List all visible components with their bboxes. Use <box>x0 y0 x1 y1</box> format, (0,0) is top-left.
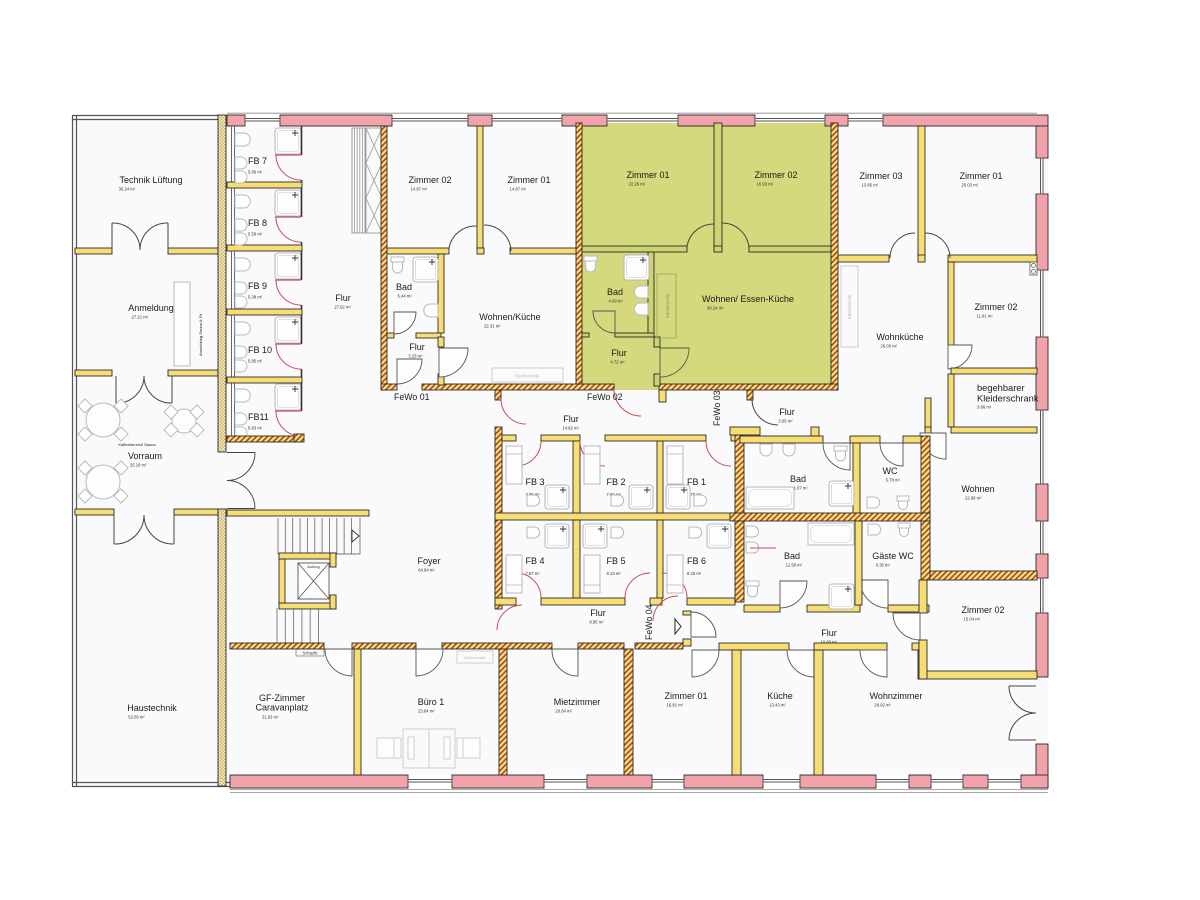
svg-text:Küchenzeile: Küchenzeile <box>847 294 852 319</box>
svg-text:Zimmer 03: Zimmer 03 <box>859 171 902 181</box>
svg-text:Wohnen: Wohnen <box>961 484 994 494</box>
svg-text:Küchenzeile: Küchenzeile <box>665 293 670 318</box>
svg-text:12.58 m²: 12.58 m² <box>786 563 803 568</box>
svg-text:Büro 1: Büro 1 <box>418 697 445 707</box>
svg-text:4.49 m²: 4.49 m² <box>609 299 624 304</box>
svg-text:Bad: Bad <box>607 287 623 297</box>
svg-text:Flur: Flur <box>611 348 627 358</box>
svg-text:27.62 m²: 27.62 m² <box>334 305 351 310</box>
svg-text:FB 3: FB 3 <box>526 477 545 487</box>
svg-text:16.81 m²: 16.81 m² <box>667 703 684 708</box>
svg-text:Flur: Flur <box>409 342 425 352</box>
svg-text:Zimmer 02: Zimmer 02 <box>408 175 451 185</box>
svg-text:Zimmer 01: Zimmer 01 <box>959 171 1002 181</box>
svg-text:FB 2: FB 2 <box>607 477 626 487</box>
svg-text:29.92 m²: 29.92 m² <box>874 703 891 708</box>
svg-text:Haustechnik: Haustechnik <box>127 703 177 713</box>
svg-text:Flur: Flur <box>821 628 837 638</box>
svg-text:3.95 m²: 3.95 m² <box>778 419 793 424</box>
svg-text:Küchenzeile: Küchenzeile <box>464 655 487 660</box>
svg-text:Vorraum: Vorraum <box>128 451 162 461</box>
svg-text:Foyer: Foyer <box>417 556 440 566</box>
svg-text:22.68 m²: 22.68 m² <box>965 496 982 501</box>
svg-text:Bad: Bad <box>784 551 800 561</box>
svg-text:Kaffeebereich Sauna: Kaffeebereich Sauna <box>118 442 156 447</box>
svg-text:Anmeldung Sauna & Fit: Anmeldung Sauna & Fit <box>198 313 203 356</box>
svg-text:Wohnen/ Essen-Küche: Wohnen/ Essen-Küche <box>702 294 794 304</box>
svg-text:11.81 m²: 11.81 m² <box>977 314 994 319</box>
svg-text:3.23 m²: 3.23 m² <box>408 354 423 359</box>
svg-text:Schacht: Schacht <box>302 651 318 656</box>
svg-text:FeWo 03: FeWo 03 <box>712 390 722 426</box>
svg-text:Kleiderschrank: Kleiderschrank <box>977 394 1039 404</box>
svg-text:FB 7: FB 7 <box>248 156 267 166</box>
svg-text:5.38 m²: 5.38 m² <box>248 295 263 300</box>
svg-text:FeWo 01: FeWo 01 <box>394 392 430 402</box>
svg-text:Anmeldung: Anmeldung <box>128 303 174 313</box>
svg-text:8.13 m²: 8.13 m² <box>607 571 622 576</box>
svg-text:Küchenzeile: Küchenzeile <box>515 374 540 379</box>
svg-text:FB 8: FB 8 <box>248 218 267 228</box>
svg-text:Zimmer 01: Zimmer 01 <box>664 691 707 701</box>
svg-text:Wohnen/Küche: Wohnen/Küche <box>479 312 540 322</box>
svg-text:FB 9: FB 9 <box>248 281 267 291</box>
svg-text:20.64 m²: 20.64 m² <box>555 709 572 714</box>
svg-text:Wohnküche: Wohnküche <box>876 332 923 342</box>
svg-text:13.85 m²: 13.85 m² <box>862 183 879 188</box>
svg-text:5.44 m²: 5.44 m² <box>398 294 413 299</box>
svg-text:30.24 m²: 30.24 m² <box>707 306 724 311</box>
svg-text:16.93 m²: 16.93 m² <box>757 182 774 187</box>
svg-text:Wohnzimmer: Wohnzimmer <box>870 691 923 701</box>
svg-text:13.43 m²: 13.43 m² <box>769 703 786 708</box>
svg-text:52.09 m²: 52.09 m² <box>128 715 145 720</box>
svg-text:Flur: Flur <box>779 407 795 417</box>
svg-text:FB 5: FB 5 <box>607 556 626 566</box>
svg-text:Flur: Flur <box>563 414 579 424</box>
svg-text:8.33 m²: 8.33 m² <box>687 571 702 576</box>
svg-text:FB 4: FB 4 <box>526 556 545 566</box>
svg-text:WC: WC <box>883 466 898 476</box>
svg-text:14.92 m²: 14.92 m² <box>562 426 579 431</box>
svg-text:14.87 m²: 14.87 m² <box>510 187 527 192</box>
svg-text:23.64 m²: 23.64 m² <box>418 709 435 714</box>
svg-text:Zimmer 02: Zimmer 02 <box>961 605 1004 615</box>
svg-text:22.31 m²: 22.31 m² <box>484 324 501 329</box>
svg-text:30.24 m²: 30.24 m² <box>119 187 136 192</box>
svg-text:14.87 m²: 14.87 m² <box>411 187 428 192</box>
svg-text:Gäste WC: Gäste WC <box>872 551 914 561</box>
svg-text:FB 10: FB 10 <box>248 345 272 355</box>
svg-text:Zimmer 01: Zimmer 01 <box>507 175 550 185</box>
svg-text:Technik Lüftung: Technik Lüftung <box>119 175 182 185</box>
svg-text:GF-Zimmer: GF-Zimmer <box>259 693 305 703</box>
svg-text:Zimmer 02: Zimmer 02 <box>974 302 1017 312</box>
svg-text:5.59 m²: 5.59 m² <box>248 232 263 237</box>
svg-text:Küche: Küche <box>767 691 793 701</box>
svg-text:20.03 m²: 20.03 m² <box>962 183 979 188</box>
svg-text:27.21 m²: 27.21 m² <box>132 315 149 320</box>
svg-text:7.87 m²: 7.87 m² <box>526 571 541 576</box>
svg-text:8.85 m²: 8.85 m² <box>589 620 604 625</box>
svg-text:Zimmer 01: Zimmer 01 <box>626 170 669 180</box>
svg-text:FeWo 04: FeWo 04 <box>644 604 654 640</box>
svg-text:FB11: FB11 <box>248 412 269 422</box>
svg-text:Bad: Bad <box>790 474 806 484</box>
svg-text:Bad: Bad <box>396 282 412 292</box>
svg-text:FB 6: FB 6 <box>687 556 706 566</box>
svg-text:Flur: Flur <box>335 293 351 303</box>
svg-text:Zimmer 02: Zimmer 02 <box>754 170 797 180</box>
svg-text:FeWo 02: FeWo 02 <box>587 392 623 402</box>
svg-text:Mietzimmer: Mietzimmer <box>554 697 601 707</box>
svg-text:26.00 m²: 26.00 m² <box>881 344 898 349</box>
svg-text:Caravanplatz: Caravanplatz <box>255 703 309 713</box>
svg-text:25.19 m²: 25.19 m² <box>130 463 147 468</box>
svg-text:5.85 m²: 5.85 m² <box>248 359 263 364</box>
svg-text:6.35 m²: 6.35 m² <box>876 563 891 568</box>
svg-text:Aufzug: Aufzug <box>307 564 319 569</box>
svg-text:FB 1: FB 1 <box>687 477 706 487</box>
svg-text:64.84 m²: 64.84 m² <box>418 568 435 573</box>
svg-text:3.86 m²: 3.86 m² <box>977 405 992 410</box>
svg-text:21.63 m²: 21.63 m² <box>262 715 279 720</box>
svg-text:5.86 m²: 5.86 m² <box>248 170 263 175</box>
svg-text:5.78 m²: 5.78 m² <box>886 478 901 483</box>
svg-text:15.04 m²: 15.04 m² <box>964 617 981 622</box>
svg-text:10.08 m²: 10.08 m² <box>820 640 837 645</box>
svg-text:4.72 m²: 4.72 m² <box>610 360 625 365</box>
svg-text:22.26 m²: 22.26 m² <box>629 182 646 187</box>
svg-text:5.83 m²: 5.83 m² <box>248 426 263 431</box>
svg-text:begehbarer: begehbarer <box>977 383 1025 393</box>
svg-text:Flur: Flur <box>590 608 606 618</box>
